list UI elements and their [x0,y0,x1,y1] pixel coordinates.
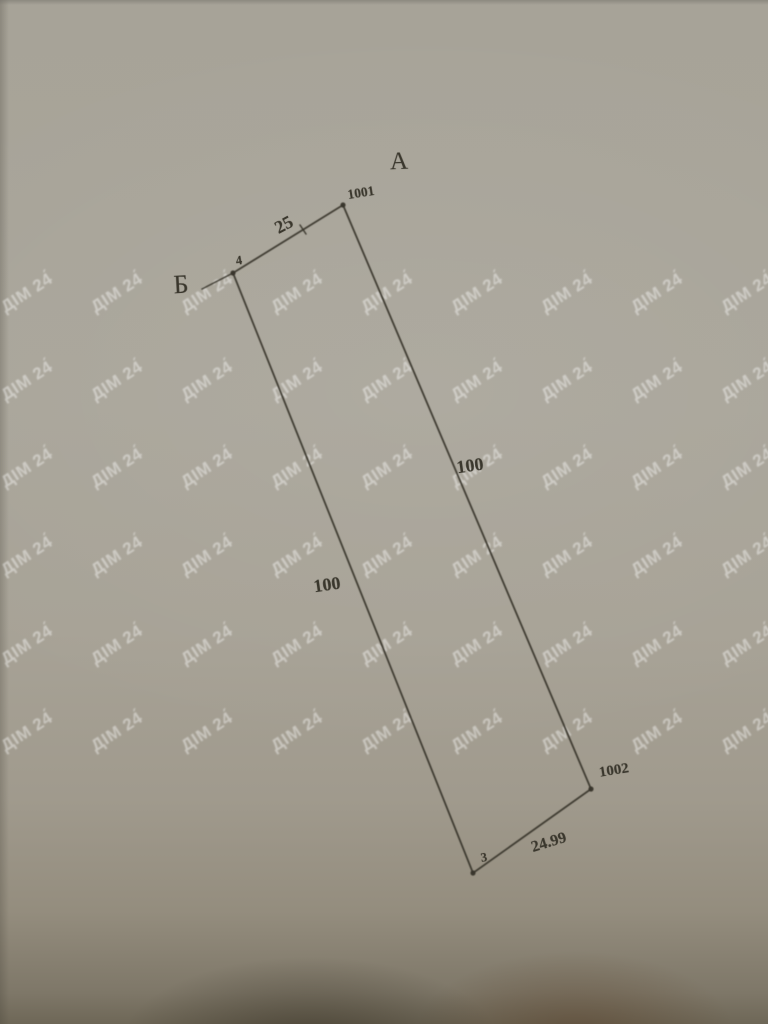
label-layer: А Б 1001 4 3 1002 25 100 100 24.99 [0,0,768,1024]
length-label-top-25: 25 [271,212,297,239]
point-label-1001: 1001 [346,183,375,203]
length-label-bottom-24-99: 24.99 [529,829,569,857]
length-label-left-100: 100 [312,573,342,598]
point-label-3: 3 [480,850,489,866]
region-label-b: Б [173,270,189,301]
point-label-4: 4 [235,253,244,269]
point-label-1002: 1002 [598,760,630,781]
photographed-survey-document: ДІМ 24́ДІМ 24́ДІМ 24́ДІМ 24́ДІМ 24́ДІМ 2… [0,0,768,1024]
length-label-right-100: 100 [455,454,485,479]
region-label-a: А [389,148,408,177]
